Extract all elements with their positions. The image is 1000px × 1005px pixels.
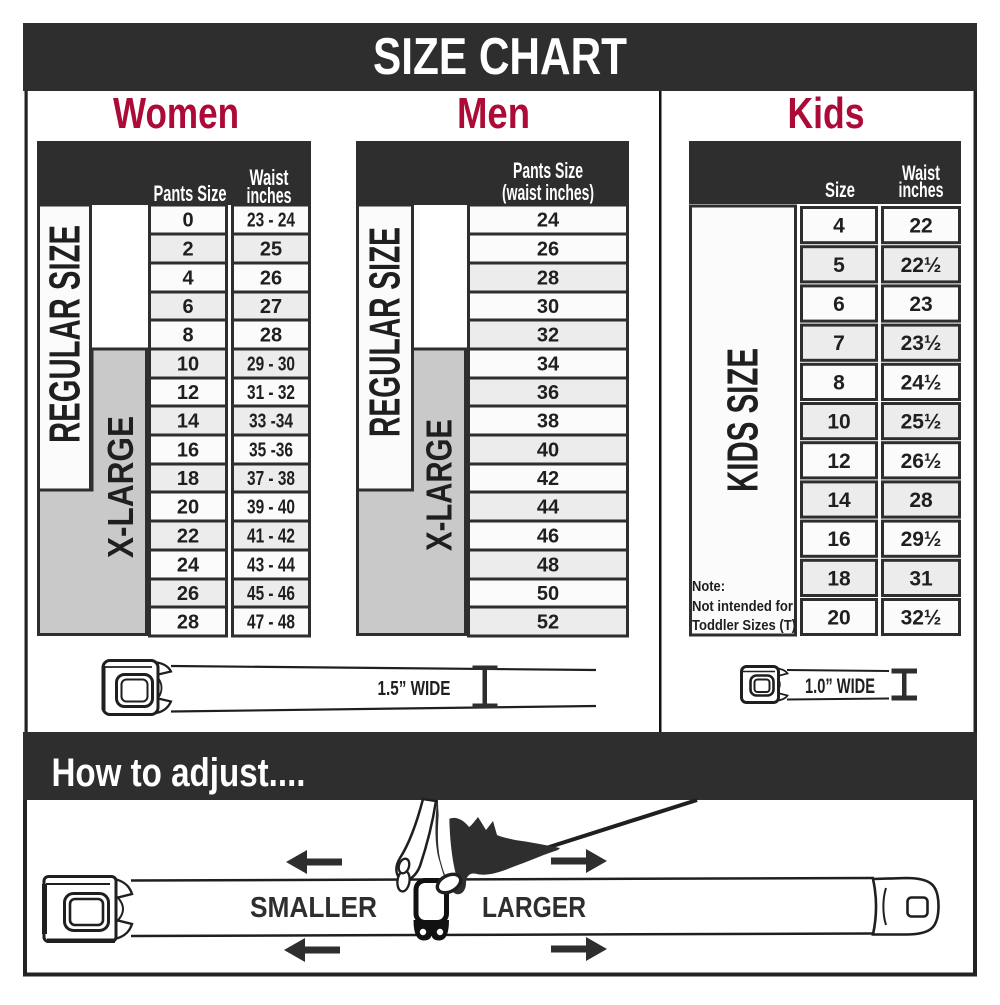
svg-text:16: 16 [177,440,199,462]
svg-text:30: 30 [537,296,559,318]
svg-text:12: 12 [827,450,850,473]
svg-text:25: 25 [260,239,282,261]
svg-text:Kids: Kids [788,89,865,138]
svg-text:Size: Size [825,179,855,202]
svg-text:43 - 44: 43 - 44 [247,555,296,577]
svg-text:18: 18 [827,567,851,590]
svg-text:33 -34: 33 -34 [249,411,294,433]
svg-text:34: 34 [537,354,560,376]
svg-text:2: 2 [182,239,193,261]
svg-text:How to adjust....: How to adjust.... [52,751,306,795]
svg-text:4: 4 [833,215,845,238]
svg-text:18: 18 [177,468,199,490]
svg-text:5: 5 [833,254,845,277]
svg-text:36: 36 [537,382,559,404]
svg-text:46: 46 [537,526,559,548]
svg-text:Pants Size: Pants Size [154,181,227,206]
svg-text:41 - 42: 41 - 42 [247,526,295,548]
svg-text:1.0” WIDE: 1.0” WIDE [805,675,875,698]
svg-text:47 - 48: 47 - 48 [247,612,295,634]
svg-text:REGULAR SIZE: REGULAR SIZE [41,225,90,443]
svg-text:6: 6 [182,296,193,318]
svg-text:42: 42 [537,468,559,490]
svg-text:29½: 29½ [901,528,942,551]
svg-text:12: 12 [177,382,199,404]
svg-text:inches: inches [899,179,944,202]
svg-text:26½: 26½ [901,450,942,473]
svg-text:16: 16 [827,528,850,551]
svg-text:6: 6 [833,293,845,316]
svg-text:1.5” WIDE: 1.5” WIDE [378,678,451,700]
svg-text:22: 22 [909,215,932,238]
svg-text:26: 26 [537,239,559,261]
svg-text:KIDS SIZE: KIDS SIZE [719,348,768,492]
svg-text:35 -36: 35 -36 [249,440,293,462]
svg-text:28: 28 [260,325,282,347]
svg-text:28: 28 [177,612,199,634]
svg-text:40: 40 [537,440,559,462]
svg-text:REGULAR SIZE: REGULAR SIZE [361,227,410,437]
svg-text:Note:: Note: [692,578,725,595]
svg-text:4: 4 [182,268,194,290]
svg-text:10: 10 [177,354,199,376]
svg-text:Women: Women [113,89,239,138]
svg-text:23: 23 [909,293,932,316]
svg-text:X-LARGE: X-LARGE [419,419,460,551]
svg-text:X-LARGE: X-LARGE [100,416,141,558]
svg-text:SIZE CHART: SIZE CHART [373,28,627,86]
svg-text:Toddler Sizes (T): Toddler Sizes (T) [692,617,796,634]
svg-text:20: 20 [827,607,850,630]
svg-text:52: 52 [537,612,559,634]
svg-text:14: 14 [827,489,851,512]
svg-text:SMALLER: SMALLER [250,892,377,924]
svg-text:25½: 25½ [901,411,942,434]
svg-text:(waist inches): (waist inches) [502,180,594,205]
svg-text:38: 38 [537,411,559,433]
svg-text:44: 44 [537,497,560,519]
svg-text:29 - 30: 29 - 30 [247,354,295,376]
svg-text:LARGER: LARGER [482,892,586,924]
svg-text:31 - 32: 31 - 32 [247,382,295,404]
svg-text:50: 50 [537,583,559,605]
svg-text:14: 14 [177,411,200,433]
svg-text:8: 8 [182,325,193,347]
svg-text:Men: Men [457,89,530,138]
svg-text:20: 20 [177,497,199,519]
svg-text:7: 7 [833,332,845,355]
svg-text:26: 26 [260,268,282,290]
svg-text:48: 48 [537,555,559,577]
svg-text:24½: 24½ [901,371,942,394]
svg-text:0: 0 [182,210,193,232]
svg-text:31: 31 [909,567,933,590]
svg-text:26: 26 [177,583,199,605]
svg-text:24: 24 [537,210,560,232]
svg-text:10: 10 [827,411,850,434]
svg-text:28: 28 [909,489,933,512]
svg-text:Not intended for: Not intended for [692,598,793,615]
svg-text:23½: 23½ [901,332,942,355]
svg-text:28: 28 [537,268,559,290]
svg-text:27: 27 [260,296,282,318]
svg-text:32½: 32½ [901,607,942,630]
svg-text:24: 24 [177,555,200,577]
svg-text:37 - 38: 37 - 38 [247,468,295,490]
svg-text:32: 32 [537,325,559,347]
svg-text:8: 8 [833,371,845,394]
svg-text:22: 22 [177,526,199,548]
svg-text:39 - 40: 39 - 40 [247,497,295,519]
svg-text:45 - 46: 45 - 46 [247,583,295,605]
svg-text:22½: 22½ [901,254,942,277]
svg-text:23 - 24: 23 - 24 [247,210,296,232]
